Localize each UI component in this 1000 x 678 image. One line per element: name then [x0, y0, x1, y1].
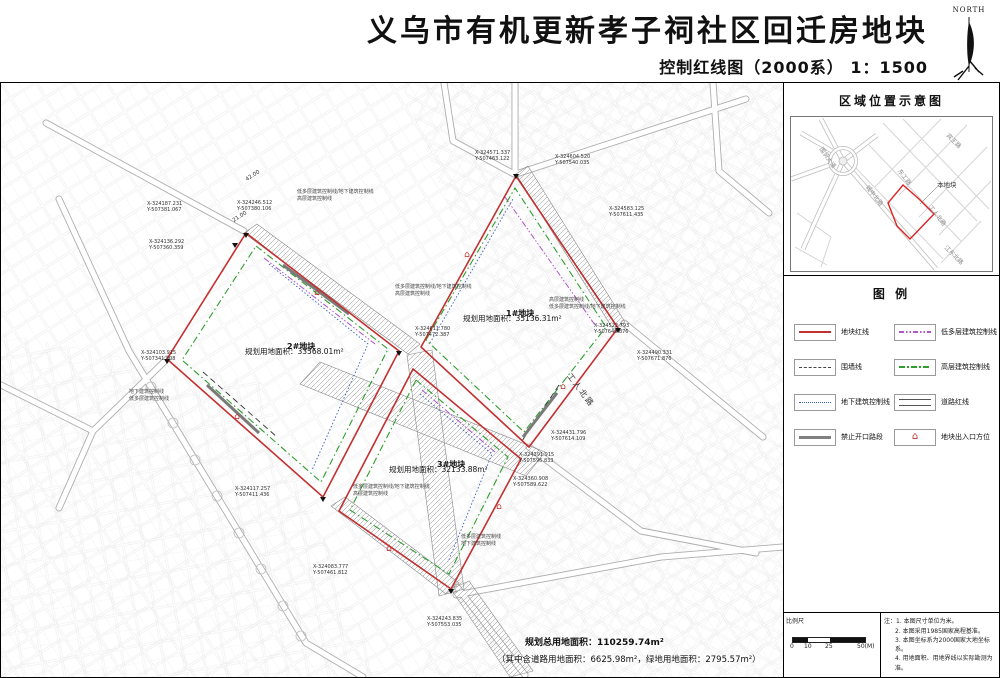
control-line-annotation: 地下建筑控制线低多层建筑控制线	[129, 389, 169, 402]
plot-area-1: 规划用地面积：35136.31m²	[463, 313, 562, 324]
svg-text:⌂: ⌂	[314, 288, 320, 298]
note-line: 1. 本图尺寸单位为米。	[896, 617, 958, 626]
plot-area-3: 规划用地面积：32133.88m²	[389, 464, 488, 475]
note-line: 4. 用地面积、用地界线以实际勘测为准。	[895, 654, 996, 673]
scalebar-cell: 比例尺 0 10 25 50(M)	[784, 613, 881, 677]
scalebar-ticks: 0 10 25 50(M)	[792, 643, 872, 651]
total-area-text: 规划总用地面积：110259.74m²	[525, 635, 664, 648]
panel-bottom: 比例尺 0 10 25 50(M) 注： 1. 本图尺寸单位为米。	[784, 613, 999, 677]
coord-label: X-324117.257Y-507411.436	[235, 486, 270, 499]
control-line-annotation: 高层建筑控制线低多层建筑控制线/地下建筑控制线	[549, 297, 626, 310]
svg-text:⌂: ⌂	[496, 502, 502, 512]
north-arrow-icon	[949, 14, 989, 82]
svg-text:⌂: ⌂	[234, 412, 240, 422]
plot-area-2: 规划用地面积：33568.01m²	[245, 346, 344, 357]
control-line-annotation: 低多层建筑控制线/地下建筑控制线高层建筑控制线	[353, 484, 430, 497]
drawing-sheet: 义乌市有机更新孝子祠社区回迁房地块 控制红线图（2000系） 1：1500 NO…	[0, 0, 1000, 678]
svg-text:⌂: ⌂	[464, 250, 470, 260]
legend-item-underground-control: 地下建筑控制线	[794, 394, 894, 411]
control-line-annotation: 低多层建筑控制线地下建筑控制线	[461, 534, 501, 547]
control-line-annotation: 低多层建筑控制线/地下建筑控制线高层建筑控制线	[395, 284, 472, 297]
main-map: ⌂⌂⌂ ⌂⌂⌂ 1#地块 规划用地面积：35136.31m² 2#地块 规划用地…	[1, 83, 784, 677]
coord-label: X-324611.780Y-507472.387	[415, 326, 450, 339]
legend-sample-black-dashed	[794, 359, 836, 376]
notes-prefix: 注：	[884, 617, 896, 626]
sub-area-text: （其中含道路用地面积：6625.98m²，绿地用地面积：2795.57m²）	[497, 653, 761, 665]
legend-sample-red-solid	[794, 324, 836, 341]
notes: 注： 1. 本图尺寸单位为米。 2. 本图采用1985国家高程基准。 3. 本图…	[881, 613, 999, 677]
this-plot-label: 本地块	[937, 179, 957, 189]
svg-text:⌂: ⌂	[560, 382, 566, 392]
entrance-symbol-icon: ⌂	[894, 429, 936, 446]
note-line: 3. 本图坐标系为2000国家大地坐标系。	[895, 636, 996, 655]
coord-label: X-324083.777Y-507461.812	[313, 564, 348, 577]
coord-label: X-324490.331Y-507671.876	[637, 350, 672, 363]
legend-sample-double-line	[894, 394, 936, 411]
location-map: 国贸大道 宾王路 东工路 城中北路 工人北路 江东北路 本地块	[790, 116, 993, 272]
drawing-title: 义乌市有机更新孝子祠社区回迁房地块	[367, 6, 928, 50]
coord-label: X-324583.125Y-507611.435	[609, 206, 644, 219]
coord-label: X-324187.231Y-507381.067	[147, 201, 182, 214]
legend-sample-blue-dotted	[794, 394, 836, 411]
legend-sample-purple-dashdotdot	[894, 324, 936, 341]
legend-item-lowrise-control: 低多层建筑控制线	[894, 324, 999, 341]
svg-text:⌂: ⌂	[386, 544, 392, 554]
coord-label: X-324391.915Y-507596.833	[519, 452, 554, 465]
north-label: NORTH	[946, 6, 992, 14]
legend-item-highrise-control: 高层建筑控制线	[894, 359, 999, 376]
map-canvas: ⌂⌂⌂ ⌂⌂⌂	[1, 83, 783, 677]
scalebar-label: 比例尺	[786, 616, 878, 625]
coord-label: X-324604.520Y-507540.035	[555, 154, 590, 167]
legend-item-road-redline: 道路红线	[894, 394, 999, 411]
note-line: 2. 本图采用1985国家高程基准。	[895, 627, 996, 636]
legend-item-no-opening: 禁止开口路段	[794, 429, 894, 446]
location-map-canvas	[791, 117, 992, 271]
coord-label: X-324571.337Y-507463.122	[475, 150, 510, 163]
coord-label: X-324103.915Y-507341.808	[141, 350, 176, 363]
legend-item-plot-redline: 地块红线	[794, 324, 894, 341]
coord-label: X-324243.835Y-507553.035	[427, 616, 462, 629]
cadastral-background	[1, 83, 783, 677]
legend-section: 图 例 地块红线 低多层建筑控制线 围墙线	[784, 276, 999, 613]
title-block: 义乌市有机更新孝子祠社区回迁房地块 控制红线图（2000系） 1：1500 NO…	[0, 0, 1000, 82]
coord-label: X-324360.908Y-507589.622	[513, 476, 548, 489]
control-line-annotation: 低多层建筑控制线/地下建筑控制线高层建筑控制线	[297, 189, 374, 202]
legend-grid: 地块红线 低多层建筑控制线 围墙线 高层建筑控制线	[794, 324, 999, 446]
drawing-subtitle: 控制红线图（2000系） 1：1500	[367, 54, 928, 78]
coord-label: X-324246.512Y-507380.106	[237, 200, 272, 213]
coord-label: X-324431.796Y-507614.109	[551, 430, 586, 443]
side-panel: 区域位置示意图	[784, 83, 999, 677]
location-section: 区域位置示意图	[784, 83, 999, 276]
coord-label: X-324522.793Y-507646.876	[594, 323, 629, 336]
legend-item-entrance: ⌂ 地块出入口方位	[894, 429, 999, 446]
legend-sample-green-dashdot	[894, 359, 936, 376]
north-arrow: NORTH	[946, 6, 992, 86]
coord-label: X-324136.292Y-507360.359	[149, 239, 184, 252]
location-title: 区域位置示意图	[784, 92, 999, 109]
drawing-frame: ⌂⌂⌂ ⌂⌂⌂ 1#地块 规划用地面积：35136.31m² 2#地块 规划用地…	[0, 82, 1000, 678]
title-group: 义乌市有机更新孝子祠社区回迁房地块 控制红线图（2000系） 1：1500	[367, 6, 928, 78]
legend-sample-gray-thick	[794, 429, 836, 446]
legend-item-wall-line: 围墙线	[794, 359, 894, 376]
legend-title: 图 例	[784, 285, 999, 302]
